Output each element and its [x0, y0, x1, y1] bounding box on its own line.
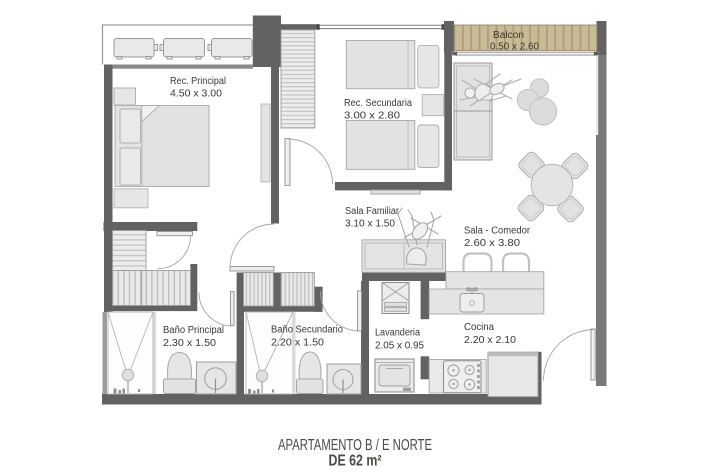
- svg-text:Sala Familiar: Sala Familiar: [345, 206, 400, 217]
- svg-text:0.50 x 2.60: 0.50 x 2.60: [490, 42, 539, 53]
- svg-text:2.30 x 1.50: 2.30 x 1.50: [163, 338, 216, 349]
- svg-text:3.10 x 1.50: 3.10 x 1.50: [345, 219, 395, 230]
- svg-text:Rec. Secundaria: Rec. Secundaria: [344, 98, 412, 109]
- svg-text:Lavanderia: Lavanderia: [375, 328, 420, 339]
- svg-text:2.20 x 2.10: 2.20 x 2.10: [464, 335, 516, 346]
- svg-text:3.00 x 2.80: 3.00 x 2.80: [344, 111, 400, 122]
- svg-text:APARTAMENTO B / E NORTE: APARTAMENTO B / E NORTE: [278, 437, 432, 454]
- svg-text:Baño Secundario: Baño Secundario: [271, 325, 343, 336]
- svg-text:Balcon: Balcon: [493, 30, 524, 41]
- svg-text:Rec. Principal: Rec. Principal: [170, 76, 226, 87]
- svg-text:DE 62 m²: DE 62 m²: [329, 453, 382, 470]
- svg-text:Cocina: Cocina: [464, 322, 494, 333]
- svg-text:Baño Principal: Baño Principal: [163, 325, 224, 336]
- svg-text:2.20 x 1.50: 2.20 x 1.50: [271, 338, 324, 349]
- svg-text:2.60 x 3.80: 2.60 x 3.80: [464, 238, 520, 249]
- svg-text:2.05 x 0.95: 2.05 x 0.95: [375, 341, 424, 352]
- svg-text:4.50 x 3.00: 4.50 x 3.00: [170, 89, 222, 100]
- svg-text:Sala - Comedor: Sala - Comedor: [464, 226, 531, 237]
